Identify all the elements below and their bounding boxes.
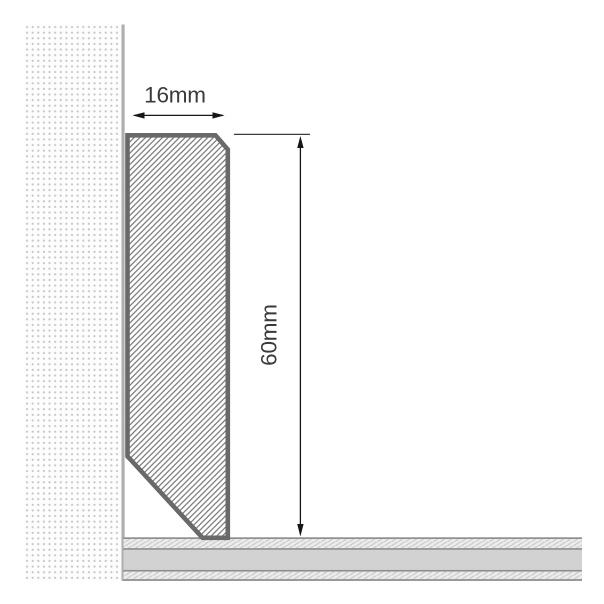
svg-text:60mm: 60mm — [257, 304, 282, 366]
svg-text:16mm: 16mm — [144, 83, 206, 108]
